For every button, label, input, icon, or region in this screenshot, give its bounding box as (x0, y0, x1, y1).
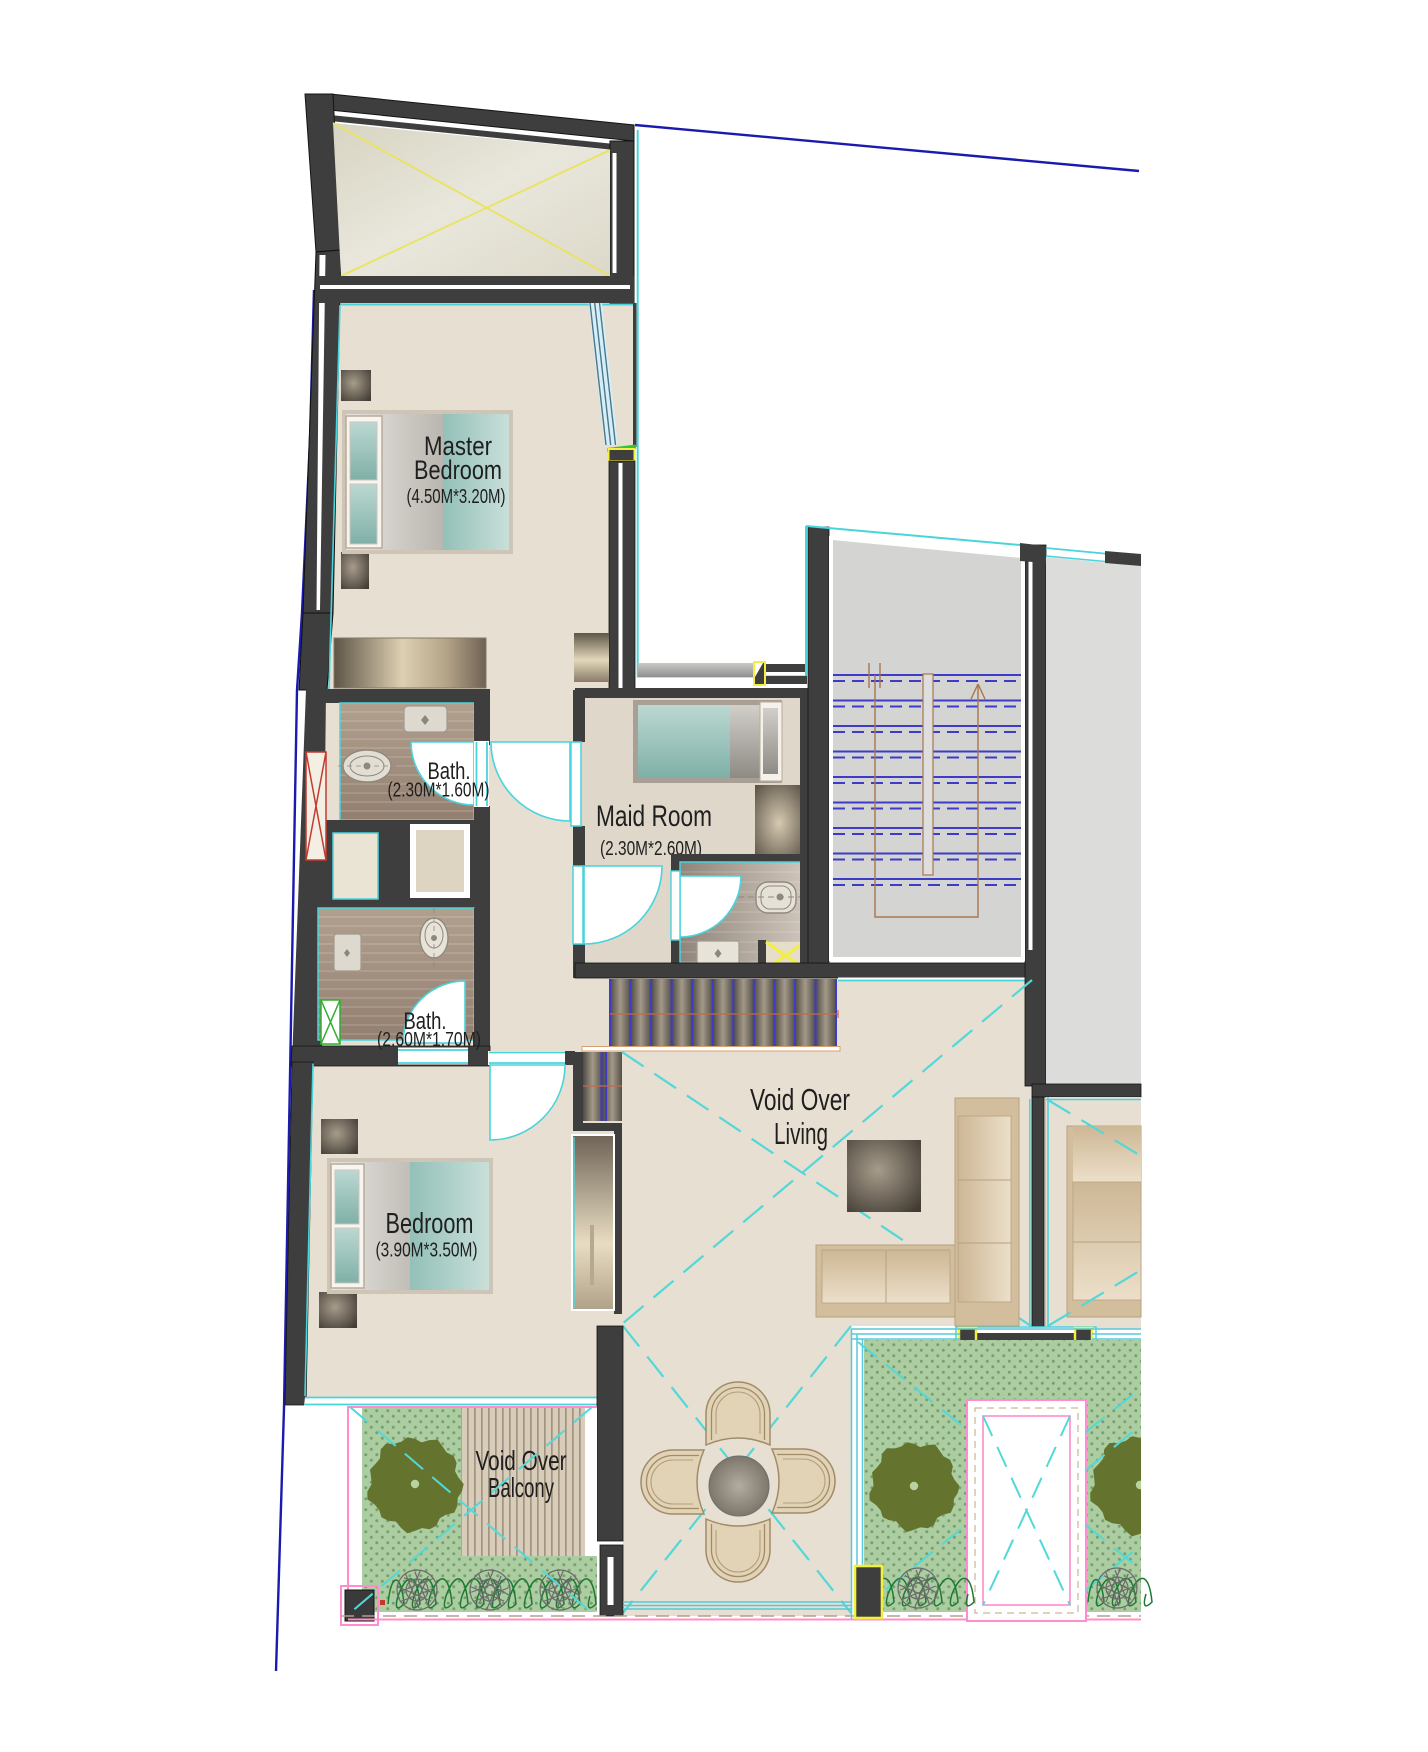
svg-text:Void Over: Void Over (750, 1083, 850, 1117)
svg-text:Bedroom: Bedroom (386, 1208, 474, 1240)
svg-text:Living: Living (774, 1117, 828, 1151)
svg-text:(4.50M*3.20M): (4.50M*3.20M) (407, 485, 506, 508)
svg-text:Bedroom: Bedroom (414, 455, 502, 485)
svg-text:(3.90M*3.50M): (3.90M*3.50M) (376, 1239, 478, 1262)
svg-text:Maid Room: Maid Room (596, 800, 712, 833)
svg-text:(2.30M*1.60M): (2.30M*1.60M) (388, 780, 490, 802)
svg-text:(2.60M*1.70M): (2.60M*1.70M) (377, 1029, 481, 1051)
